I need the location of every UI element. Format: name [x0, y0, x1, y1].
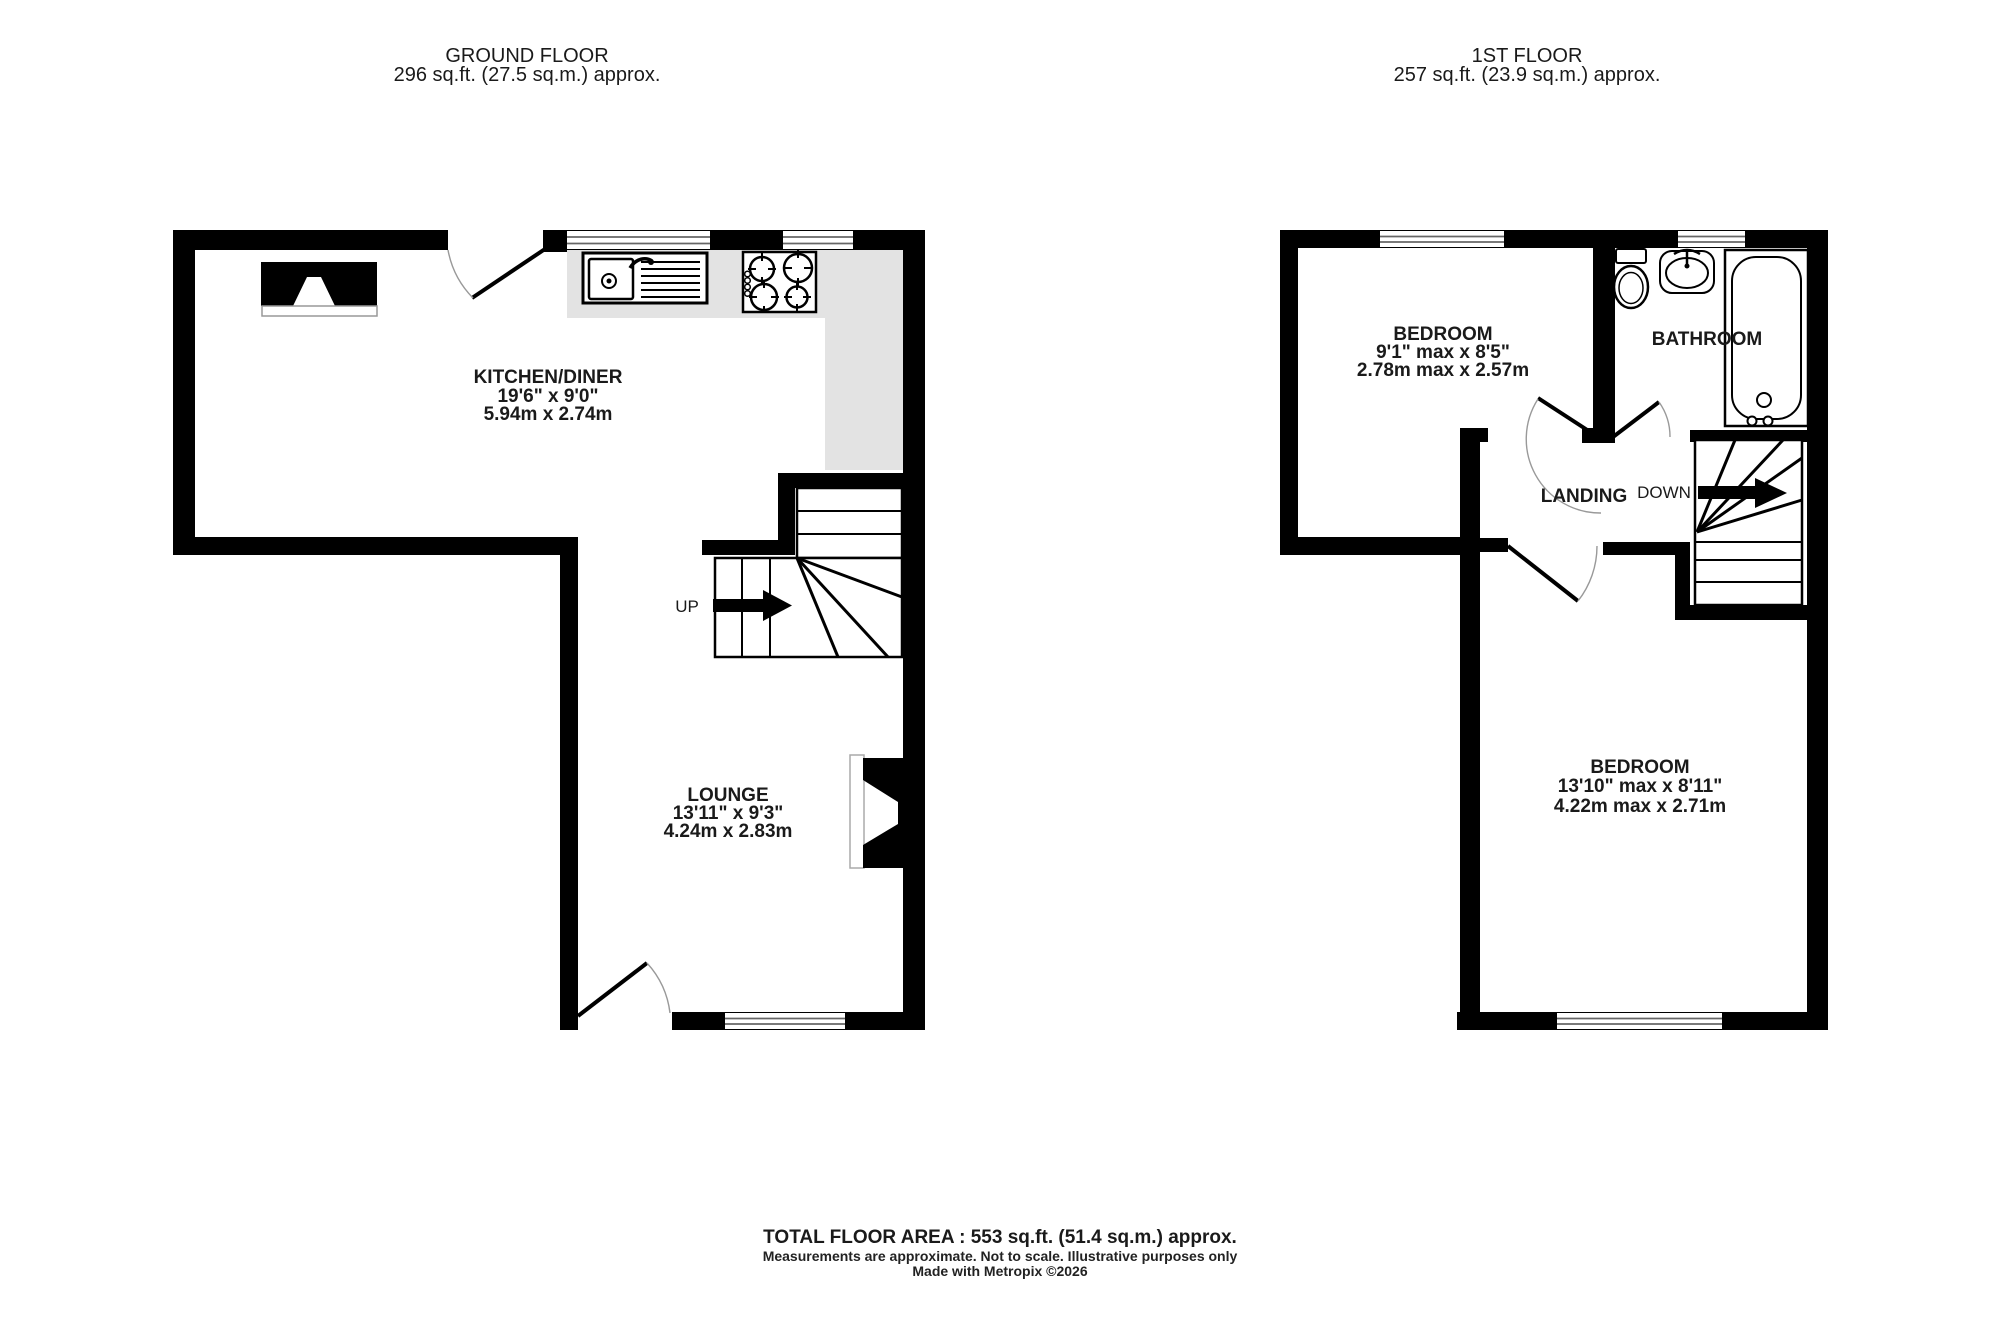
floorplan-page: GROUND FLOOR 296 sq.ft. (27.5 sq.m.) app… [0, 0, 2000, 1333]
ground-staircase [713, 488, 902, 657]
window [1380, 231, 1504, 247]
first-floor-area: 257 sq.ft. (23.9 sq.m.) approx. [1394, 64, 1661, 86]
lounge-size-metric: 4.24m x 2.83m [664, 821, 793, 842]
front-door [448, 249, 545, 298]
window [783, 231, 853, 249]
bedroom2-size-metric: 4.22m max x 2.71m [1554, 796, 1726, 817]
up-label: UP [675, 597, 699, 616]
lounge-fireplace [850, 755, 903, 868]
first-staircase [1695, 440, 1802, 605]
bathroom-door [1613, 402, 1670, 437]
window [725, 1013, 845, 1029]
credit-text: Made with Metropix ©2026 [912, 1263, 1087, 1279]
window [1678, 231, 1745, 247]
lounge-door [578, 963, 670, 1016]
landing-label: LANDING [1541, 486, 1628, 507]
first-floor-plan: 1ST FLOOR 257 sq.ft. (23.9 sq.m.) approx… [1280, 45, 1828, 1030]
bedroom2-size-imperial: 13'10" max x 8'11" [1558, 776, 1722, 797]
basin-icon [1660, 250, 1714, 293]
stove-icon [743, 250, 816, 313]
kitchen-size-metric: 5.94m x 2.74m [484, 404, 613, 425]
floorplan-canvas: GROUND FLOOR 296 sq.ft. (27.5 sq.m.) app… [0, 0, 2000, 1333]
disclaimer-text: Measurements are approximate. Not to sca… [763, 1248, 1238, 1264]
bedroom2-door [1508, 546, 1597, 601]
bathroom-label: BATHROOM [1652, 329, 1762, 350]
bedroom2-label: BEDROOM [1590, 757, 1689, 778]
kitchen-label: KITCHEN/DINER [474, 367, 623, 388]
toilet-icon [1614, 249, 1648, 308]
sink-icon [583, 253, 707, 303]
window [1557, 1013, 1722, 1029]
kitchen-chimney-breast [261, 262, 377, 316]
ground-floor-plan: GROUND FLOOR 296 sq.ft. (27.5 sq.m.) app… [173, 45, 925, 1030]
ground-floor-area: 296 sq.ft. (27.5 sq.m.) approx. [394, 64, 661, 86]
window [567, 231, 710, 249]
footer: TOTAL FLOOR AREA : 553 sq.ft. (51.4 sq.m… [763, 1227, 1238, 1279]
down-label: DOWN [1637, 483, 1691, 502]
total-floor-area: TOTAL FLOOR AREA : 553 sq.ft. (51.4 sq.m… [763, 1227, 1237, 1248]
bedroom1-size-metric: 2.78m max x 2.57m [1357, 360, 1529, 381]
